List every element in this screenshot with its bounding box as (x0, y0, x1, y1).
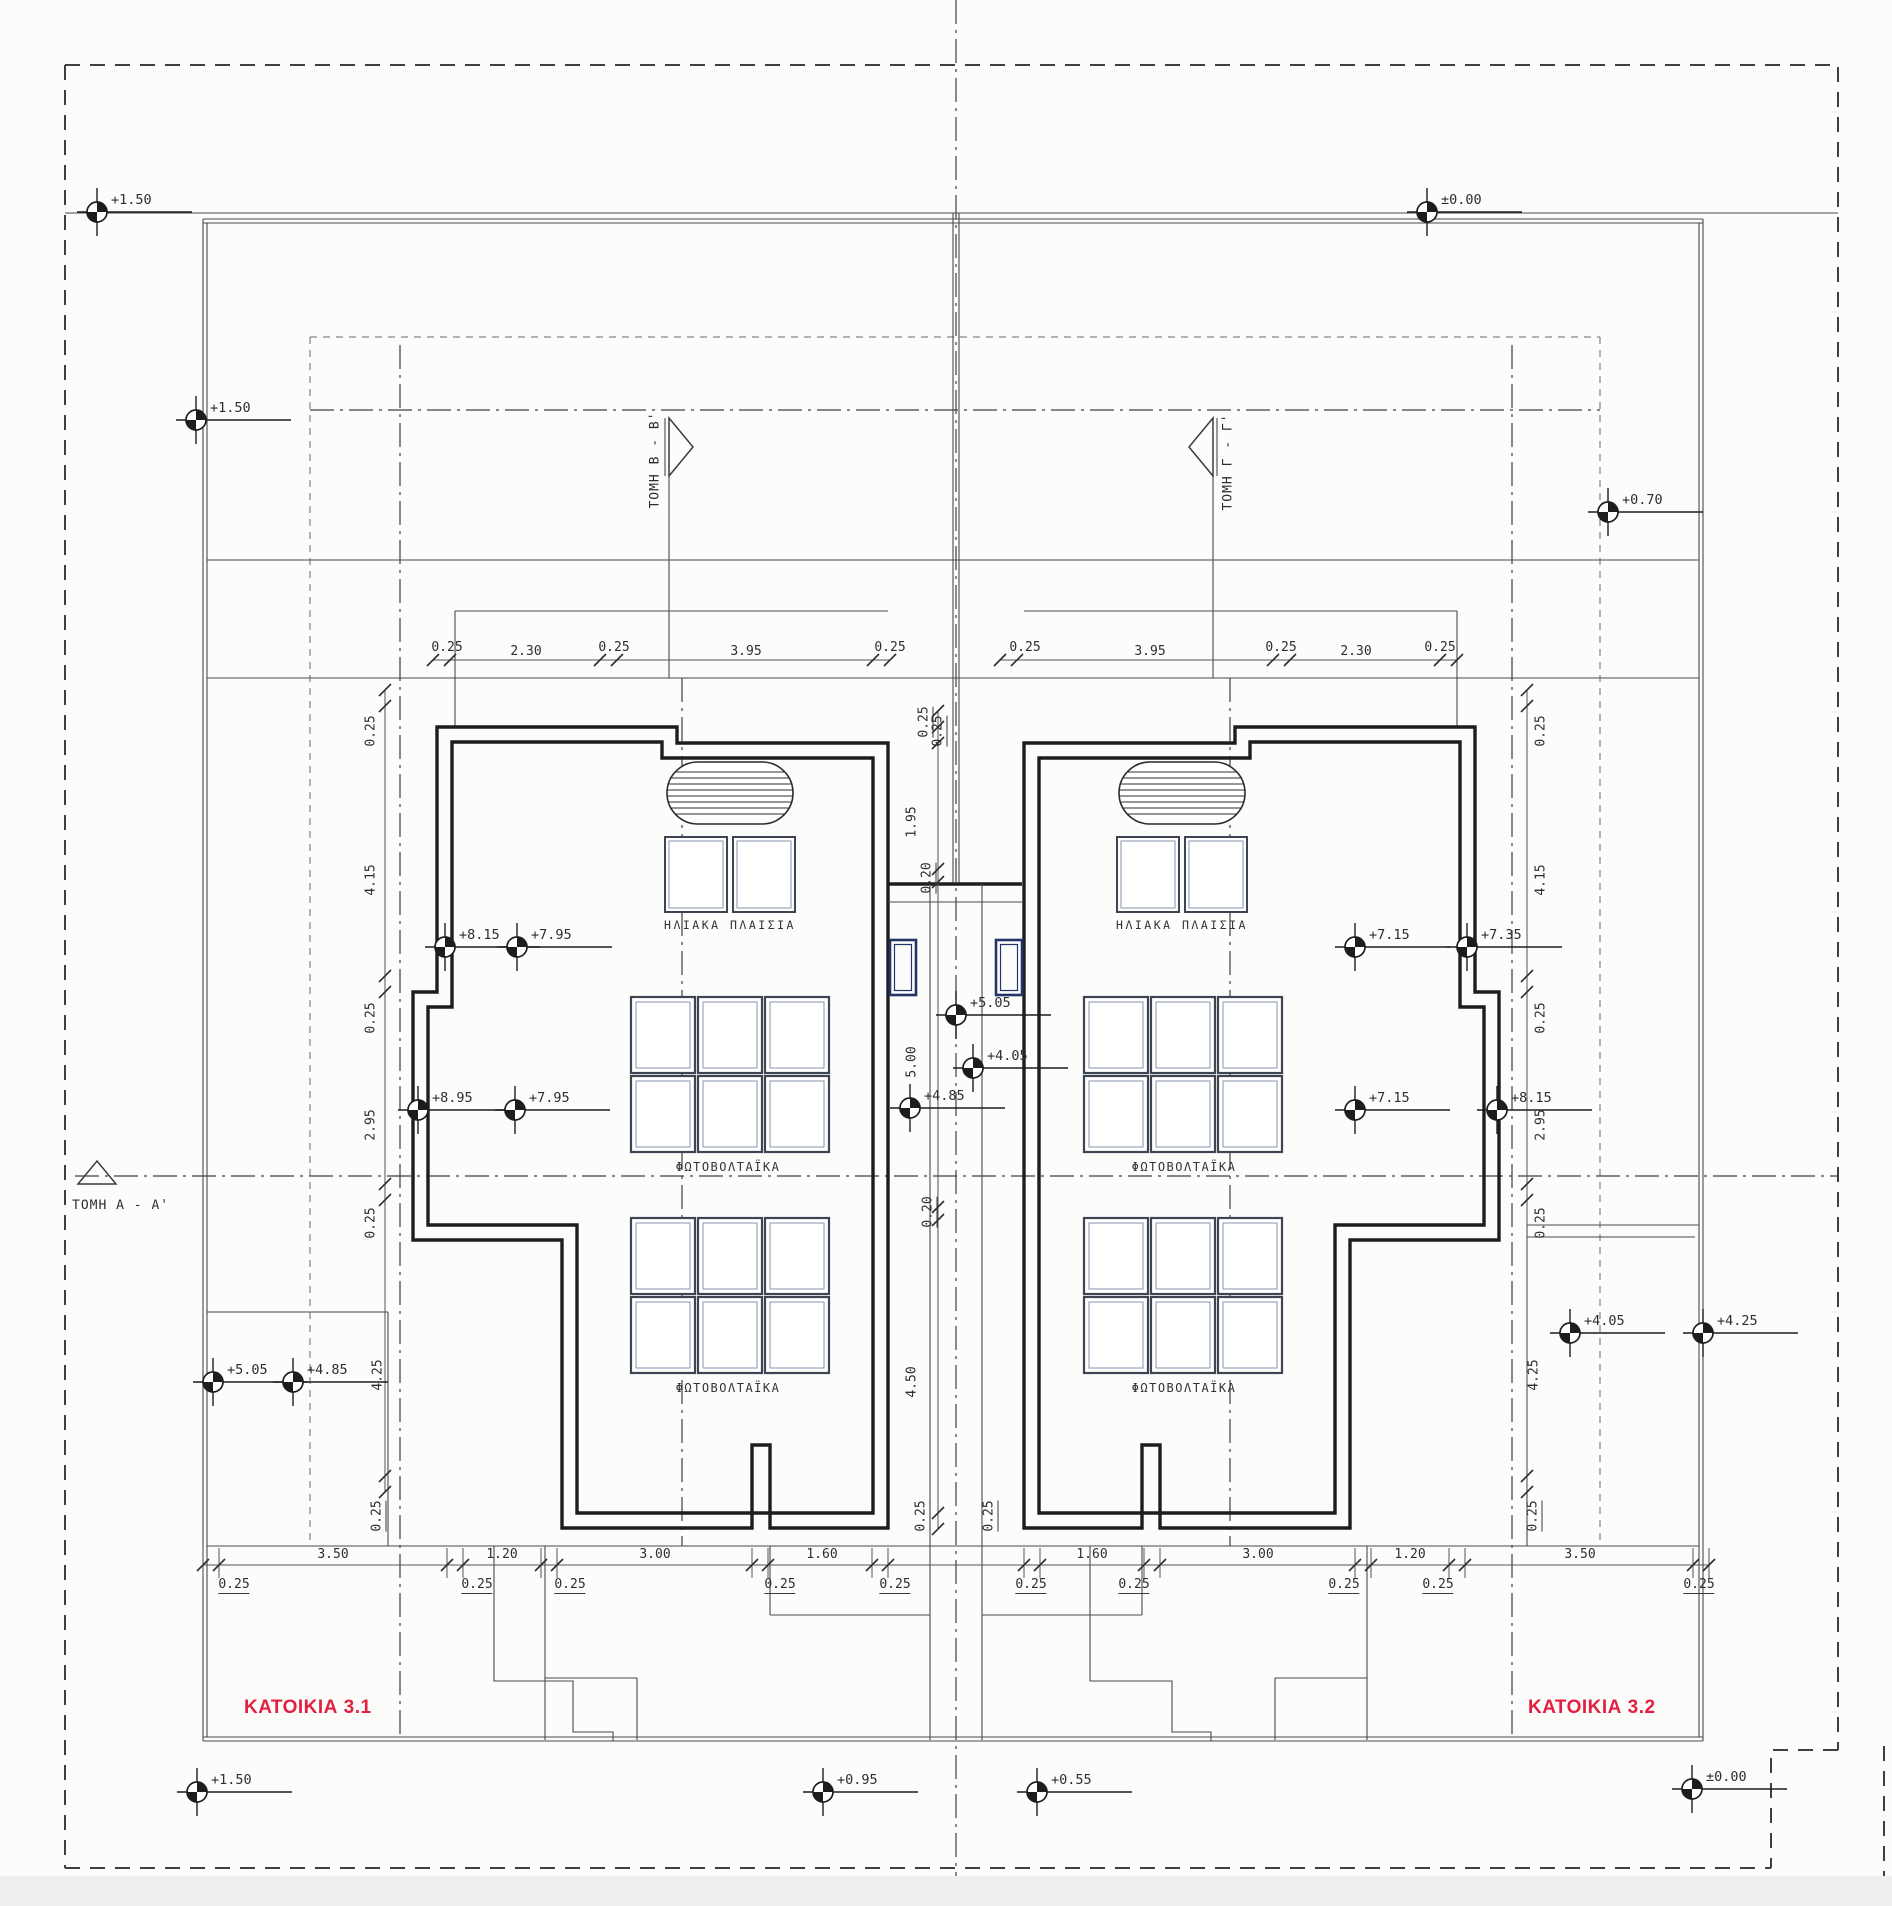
level-center-b: +4.05 (987, 1048, 1028, 1064)
dim-center-2: 1.95 (905, 806, 920, 837)
dim-top-left-0: 0.25 (431, 640, 462, 655)
level-center-a: +5.05 (970, 995, 1011, 1011)
level-terrace-right-1: +4.05 (1584, 1313, 1625, 1329)
level-roof-left-b2: +7.95 (529, 1090, 570, 1106)
dim-top-right-1: 3.95 (1134, 644, 1165, 659)
level-upper-left: +1.50 (210, 400, 251, 416)
dim-left-col-5: 4.25 (371, 1359, 386, 1390)
dim-bottom-left-8: 0.25 (879, 1577, 910, 1594)
section-label-gg: ΤΟΜΗ Γ - Γ' (1221, 413, 1236, 510)
dim-bottom-left-3: 1.20 (486, 1547, 517, 1562)
dim-left-col-4: 0.25 (364, 1207, 379, 1238)
level-bottom-c: +0.55 (1051, 1772, 1092, 1788)
pv-array-right-lower (1084, 1218, 1282, 1373)
dim-center-8: 0.25 (982, 1500, 999, 1531)
dim-top-left-2: 0.25 (598, 640, 629, 655)
dim-right-col-4: 0.25 (1534, 1207, 1549, 1238)
dim-left-col-1: 4.15 (364, 864, 379, 895)
dim-center-3: 0.20 (920, 862, 937, 893)
dim-center-1: 0.25 (931, 715, 948, 746)
roof-plan-drawing: +1.50 ±0.00 +1.50 +0.70 +8.15 +7.95 +7.1… (0, 0, 1892, 1906)
dim-bottom-left-5: 3.00 (639, 1547, 670, 1562)
dim-bottom-right-4: 0.25 (1328, 1577, 1359, 1594)
label-pv-right-lower: ΦΩΤΟΒΟΛΤΑΪΚΑ (1132, 1381, 1237, 1395)
dim-top-right-2: 0.25 (1265, 640, 1296, 655)
level-bottom-a: +1.50 (211, 1772, 252, 1788)
label-pv-left-upper: ΦΩΤΟΒΟΛΤΑΪΚΑ (676, 1160, 781, 1174)
level-terrace-left-1: +5.05 (227, 1362, 268, 1378)
section-line-gg (1189, 418, 1217, 678)
label-solar-left: ΗΛΙΑΚΑ ΠΛΑΙΣΙΑ (664, 918, 796, 932)
house-title-left: ΚΑΤΟΙΚΙΑ 3.1 (244, 1697, 372, 1719)
level-terrace-left-2: +4.85 (307, 1362, 348, 1378)
dim-bottom-right-3: 3.00 (1242, 1547, 1273, 1562)
level-upper-right: +0.70 (1622, 492, 1663, 508)
level-roof-left-a1: +8.15 (459, 927, 500, 943)
section-label-bb: ΤΟΜΗ Β - Β' (648, 411, 663, 508)
property-boundary-dashed (65, 65, 1884, 1902)
dim-center-5: 0.20 (921, 1196, 938, 1227)
label-solar-right: ΗΛΙΑΚΑ ΠΛΑΙΣΙΑ (1116, 918, 1248, 932)
house-title-right: ΚΑΤΟΙΚΙΑ 3.2 (1528, 1697, 1656, 1719)
dim-bottom-left-4: 0.25 (554, 1577, 585, 1594)
solar-heater-right (1119, 762, 1245, 824)
solar-heater-left (667, 762, 793, 824)
dim-left-col-3: 2.95 (364, 1109, 379, 1140)
dim-left-col-0: 0.25 (364, 715, 379, 746)
dim-bottom-left-6: 0.25 (764, 1577, 795, 1594)
level-roof-right-b1: +7.15 (1369, 1090, 1410, 1106)
dim-bottom-right-5: 1.20 (1394, 1547, 1425, 1562)
level-bottom-b: +0.95 (837, 1772, 878, 1788)
dim-center-7: 0.25 (914, 1500, 931, 1531)
level-roof-left-b1: +8.95 (432, 1090, 473, 1106)
level-roof-right-a1: +7.15 (1369, 927, 1410, 943)
dim-bottom-right-1: 1.60 (1076, 1547, 1107, 1562)
dim-top-left-4: 0.25 (874, 640, 905, 655)
section-line-bb (665, 418, 693, 678)
dim-top-left-1: 2.30 (510, 644, 541, 659)
level-bottom-d: ±0.00 (1706, 1769, 1747, 1785)
dim-top-right-4: 0.25 (1424, 640, 1455, 655)
dim-bottom-left-2: 0.25 (461, 1577, 492, 1594)
dim-center-6: 4.50 (905, 1366, 920, 1397)
dim-center-4: 5.00 (905, 1046, 920, 1077)
label-pv-left-lower: ΦΩΤΟΒΟΛΤΑΪΚΑ (676, 1381, 781, 1395)
level-top-left: +1.50 (111, 192, 152, 208)
dim-bottom-right-0: 0.25 (1015, 1577, 1046, 1594)
skylight-right (996, 940, 1022, 995)
dim-bottom-right-8: 0.25 (1683, 1577, 1714, 1594)
section-marker-aa (78, 1161, 116, 1184)
dim-bottom-right-2: 0.25 (1118, 1577, 1149, 1594)
dim-right-col-5: 4.25 (1527, 1359, 1542, 1390)
dim-right-col-3: 2.95 (1534, 1109, 1549, 1140)
dim-left-col-2: 0.25 (364, 1002, 379, 1033)
pv-array-right-upper (1084, 997, 1282, 1152)
dim-bottom-left-7: 1.60 (806, 1547, 837, 1562)
level-terrace-right-2: +4.25 (1717, 1313, 1758, 1329)
level-center-c: +4.85 (924, 1088, 965, 1104)
label-pv-right-upper: ΦΩΤΟΒΟΛΤΑΪΚΑ (1132, 1160, 1237, 1174)
plot-outline (65, 213, 1838, 1741)
dim-top-right-0: 0.25 (1009, 640, 1040, 655)
skylight-left (890, 940, 916, 995)
dim-right-col-2: 0.25 (1534, 1002, 1549, 1033)
dim-right-col-0: 0.25 (1534, 715, 1549, 746)
section-label-aa: ΤΟΜΗ Α - Α' (72, 1198, 169, 1213)
level-roof-right-b2: +8.15 (1511, 1090, 1552, 1106)
dim-bottom-left-1: 3.50 (317, 1547, 348, 1562)
dim-bottom-left-0: 0.25 (218, 1577, 249, 1594)
dim-top-right-3: 2.30 (1340, 644, 1371, 659)
dim-right-col-1: 4.15 (1534, 864, 1549, 895)
pv-array-left-upper (631, 997, 829, 1152)
dim-left-col-6: 0.25 (370, 1500, 387, 1531)
dim-right-col-6: 0.25 (1526, 1500, 1543, 1531)
dim-top-left-3: 3.95 (730, 644, 761, 659)
plan-linework (0, 0, 1892, 1906)
solar-panels-left (665, 837, 795, 912)
axis-lines (75, 0, 1838, 1906)
level-roof-right-a2: +7.35 (1481, 927, 1522, 943)
level-roof-left-a2: +7.95 (531, 927, 572, 943)
dim-bottom-right-6: 0.25 (1422, 1577, 1453, 1594)
level-top-right: ±0.00 (1441, 192, 1482, 208)
scan-shadow (0, 1876, 1892, 1906)
pv-array-left-lower (631, 1218, 829, 1373)
dim-bottom-right-7: 3.50 (1564, 1547, 1595, 1562)
solar-panels-right (1117, 837, 1247, 912)
